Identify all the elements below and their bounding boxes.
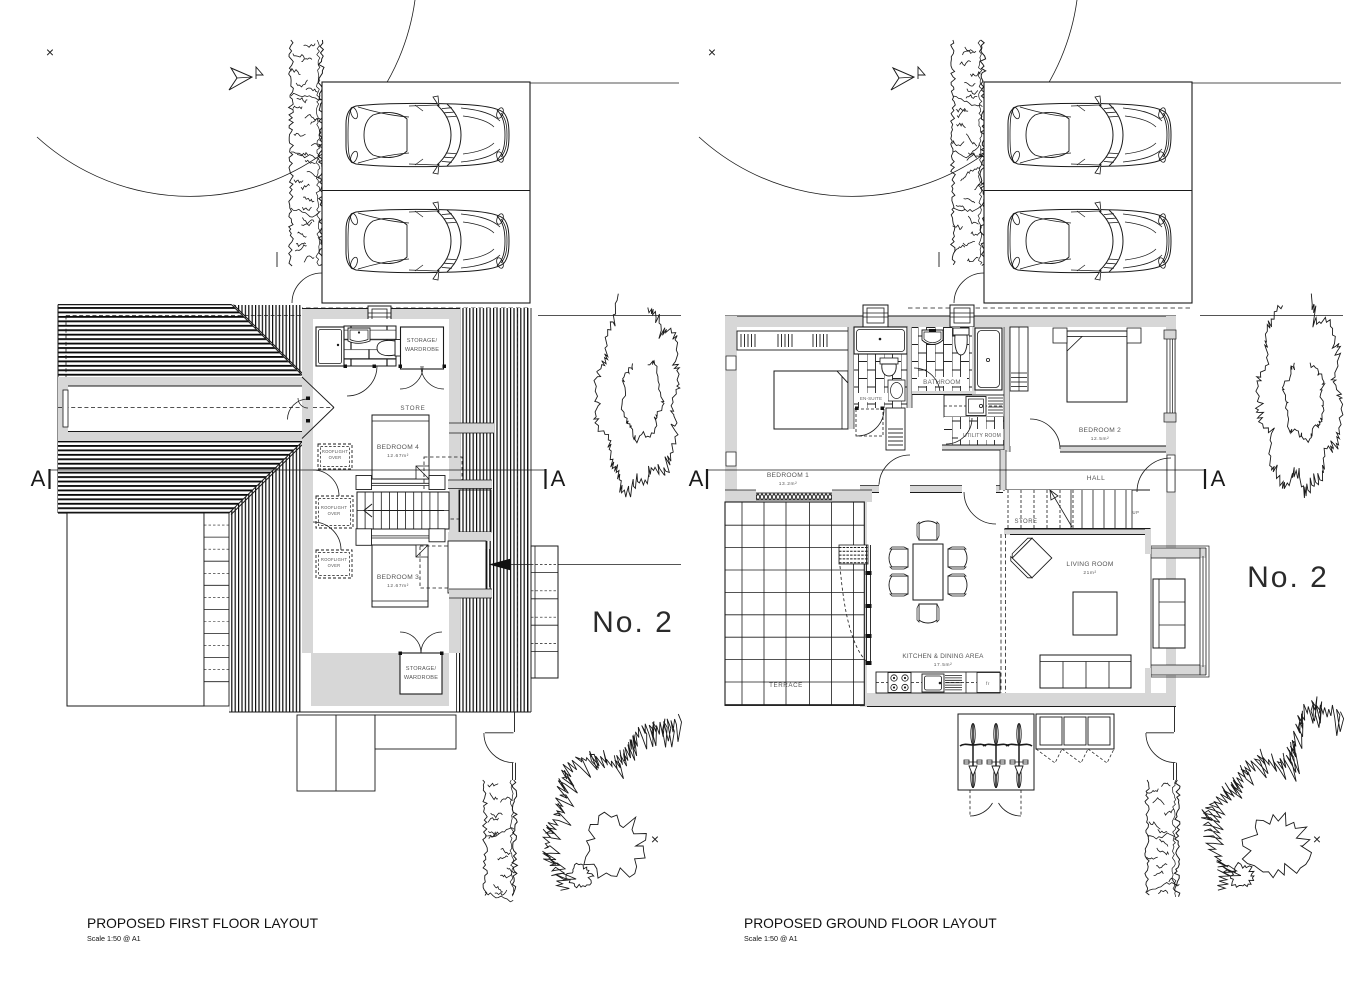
svg-text:OVER: OVER bbox=[328, 511, 341, 516]
svg-text:OVER: OVER bbox=[329, 455, 342, 460]
svg-text:fr: fr bbox=[986, 681, 990, 686]
svg-text:12.67m²: 12.67m² bbox=[387, 583, 409, 589]
svg-text:UP: UP bbox=[1132, 510, 1139, 515]
svg-text:A: A bbox=[1211, 466, 1226, 491]
svg-text:WARDROBE: WARDROBE bbox=[404, 675, 438, 681]
svg-text:STORE: STORE bbox=[1014, 519, 1037, 525]
svg-text:UTILITY ROOM: UTILITY ROOM bbox=[963, 433, 1001, 439]
svg-text:HALL: HALL bbox=[1087, 475, 1106, 482]
svg-text:17.5m²: 17.5m² bbox=[934, 662, 953, 668]
svg-text:KITCHEN & DINING AREA: KITCHEN & DINING AREA bbox=[902, 653, 984, 660]
svg-text:WARDROBE: WARDROBE bbox=[405, 347, 439, 353]
svg-text:OVER: OVER bbox=[328, 563, 341, 568]
svg-text:ROOFLIGHT: ROOFLIGHT bbox=[321, 505, 347, 510]
svg-text:STORE: STORE bbox=[400, 405, 425, 412]
svg-text:TERRACE: TERRACE bbox=[769, 682, 803, 689]
svg-text:STORAGE/: STORAGE/ bbox=[407, 338, 438, 344]
svg-text:A: A bbox=[551, 466, 566, 491]
svg-text:BATHROOM: BATHROOM bbox=[923, 379, 961, 386]
svg-text:A: A bbox=[689, 466, 704, 491]
svg-text:No. 2: No. 2 bbox=[592, 606, 674, 639]
svg-text:×: × bbox=[46, 44, 54, 60]
svg-text:×: × bbox=[1313, 831, 1321, 847]
svg-text:BEDROOM 4: BEDROOM 4 bbox=[377, 444, 419, 451]
svg-text:EN-SUITE: EN-SUITE bbox=[860, 396, 882, 401]
svg-text:×: × bbox=[651, 831, 659, 847]
svg-text:×: × bbox=[708, 44, 716, 60]
svg-text:ROOFLIGHT: ROOFLIGHT bbox=[322, 449, 348, 454]
svg-text:A: A bbox=[31, 466, 46, 491]
svg-text:BEDROOM 2: BEDROOM 2 bbox=[1079, 427, 1121, 434]
svg-text:12.67m²: 12.67m² bbox=[387, 453, 409, 459]
svg-text:13.2m²: 13.2m² bbox=[779, 481, 798, 487]
svg-text:BEDROOM 3: BEDROOM 3 bbox=[377, 574, 419, 581]
svg-text:PROPOSED GROUND FLOOR LAYOUT: PROPOSED GROUND FLOOR LAYOUT bbox=[744, 916, 997, 931]
svg-text:12.5m²: 12.5m² bbox=[1091, 436, 1110, 442]
svg-text:LIVING ROOM: LIVING ROOM bbox=[1066, 561, 1113, 568]
svg-text:BEDROOM 1: BEDROOM 1 bbox=[767, 472, 809, 479]
svg-text:21m²: 21m² bbox=[1083, 570, 1096, 576]
svg-text:Scale 1:50 @ A1: Scale 1:50 @ A1 bbox=[87, 934, 141, 943]
svg-text:ROOFLIGHT: ROOFLIGHT bbox=[321, 557, 347, 562]
svg-text:PROPOSED FIRST FLOOR LAYOUT: PROPOSED FIRST FLOOR LAYOUT bbox=[87, 916, 319, 931]
svg-text:STORAGE/: STORAGE/ bbox=[406, 666, 437, 672]
svg-text:Scale 1:50 @ A1: Scale 1:50 @ A1 bbox=[744, 934, 798, 943]
svg-text:No. 2: No. 2 bbox=[1247, 561, 1329, 594]
